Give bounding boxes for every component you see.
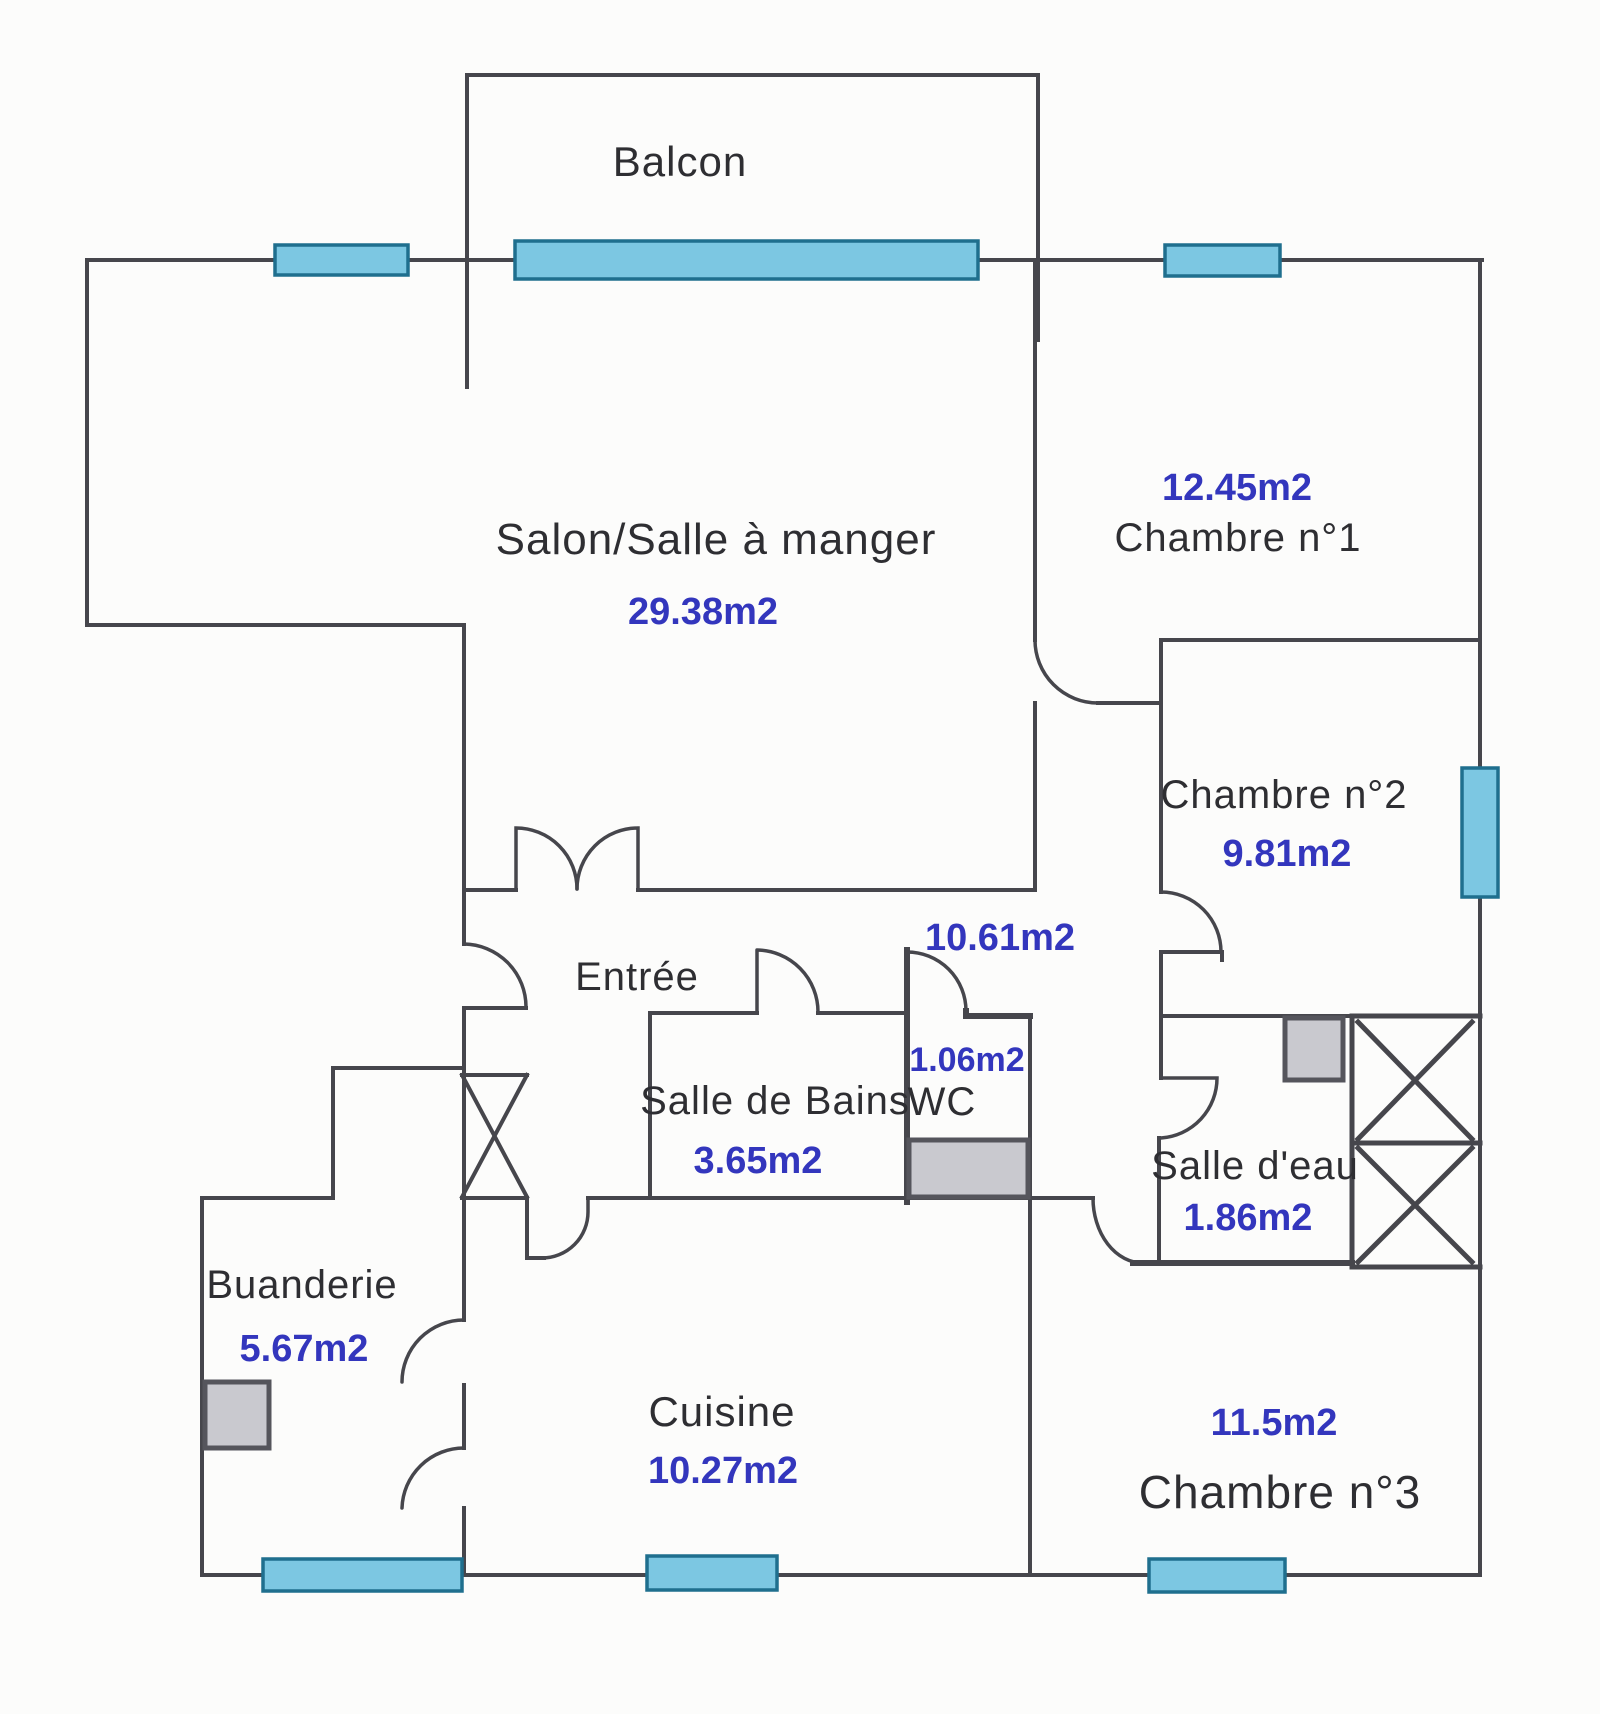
wall-ch2-door-stub: [1161, 952, 1222, 960]
door-salledeau: [1161, 1078, 1217, 1138]
room-label-chambre2: Chambre n°2: [1160, 773, 1407, 817]
room-area-buanderie: 5.67m2: [240, 1328, 369, 1370]
room-label-balcon: Balcon: [613, 138, 747, 185]
door-salon-double-right: [577, 828, 638, 890]
fixture-wc: [909, 1140, 1028, 1197]
window-buanderie: [263, 1559, 462, 1591]
room-area-chambre1: 12.45m2: [1162, 467, 1312, 509]
window-cuisine: [647, 1556, 777, 1590]
room-label-wc: WC: [908, 1080, 977, 1124]
door-buanderie-lower: [402, 1448, 464, 1508]
room-area-entree: 10.61m2: [925, 917, 1075, 959]
room-label-cuisine: Cuisine: [648, 1388, 795, 1435]
door-cuisine: [542, 1198, 588, 1258]
door-chambre1: [1035, 640, 1098, 703]
door-wc: [907, 952, 966, 1011]
window-top-left: [275, 245, 408, 275]
window-balcony: [515, 241, 978, 279]
room-label-chambre3: Chambre n°3: [1139, 1466, 1422, 1518]
room-area-salle-de-bains: 3.65m2: [694, 1140, 823, 1182]
floor-plan-page: Balcon Salon/Salle à manger 29.38m2 12.4…: [0, 0, 1600, 1714]
room-label-salledeau: Salle d'eau: [1151, 1144, 1359, 1188]
room-area-cuisine: 10.27m2: [648, 1450, 798, 1492]
fixture-salledeau: [1285, 1018, 1343, 1080]
door-salon-double-left: [516, 828, 577, 890]
room-area-wc: 1.06m2: [909, 1041, 1024, 1079]
door-chambre2: [1161, 892, 1221, 952]
room-label-salle-de-bains: Salle de Bains: [640, 1079, 910, 1123]
wall-cuisine-door-step: [527, 1198, 544, 1258]
shaft-cross-upper: [1358, 1022, 1472, 1139]
window-chambre2: [1462, 768, 1498, 897]
closet-cross: [462, 1075, 527, 1197]
room-label-salon: Salon/Salle à manger: [496, 515, 937, 564]
door-entree-west: [464, 944, 526, 1007]
door-buanderie-upper: [402, 1320, 464, 1382]
window-chambre3: [1149, 1559, 1285, 1592]
room-area-salledeau: 1.86m2: [1184, 1197, 1313, 1239]
floor-plan-drawing: Balcon Salon/Salle à manger 29.38m2 12.4…: [0, 0, 1600, 1714]
room-area-chambre2: 9.81m2: [1223, 833, 1352, 875]
room-label-buanderie: Buanderie: [206, 1263, 397, 1307]
room-label-entree: Entrée: [575, 955, 699, 999]
fixture-buanderie: [205, 1382, 269, 1448]
wall-wc-top: [966, 1011, 1030, 1016]
room-area-salon: 29.38m2: [628, 591, 778, 633]
window-chambre1: [1165, 245, 1280, 276]
door-salle-de-bains: [757, 950, 818, 1013]
labels: Balcon Salon/Salle à manger 29.38m2 12.4…: [206, 138, 1421, 1518]
door-chambre3: [1093, 1198, 1143, 1263]
windows: [263, 241, 1498, 1592]
room-label-chambre1: Chambre n°1: [1114, 516, 1361, 560]
room-area-chambre3: 11.5m2: [1211, 1402, 1338, 1444]
shaft-cross-lower: [1358, 1148, 1472, 1262]
